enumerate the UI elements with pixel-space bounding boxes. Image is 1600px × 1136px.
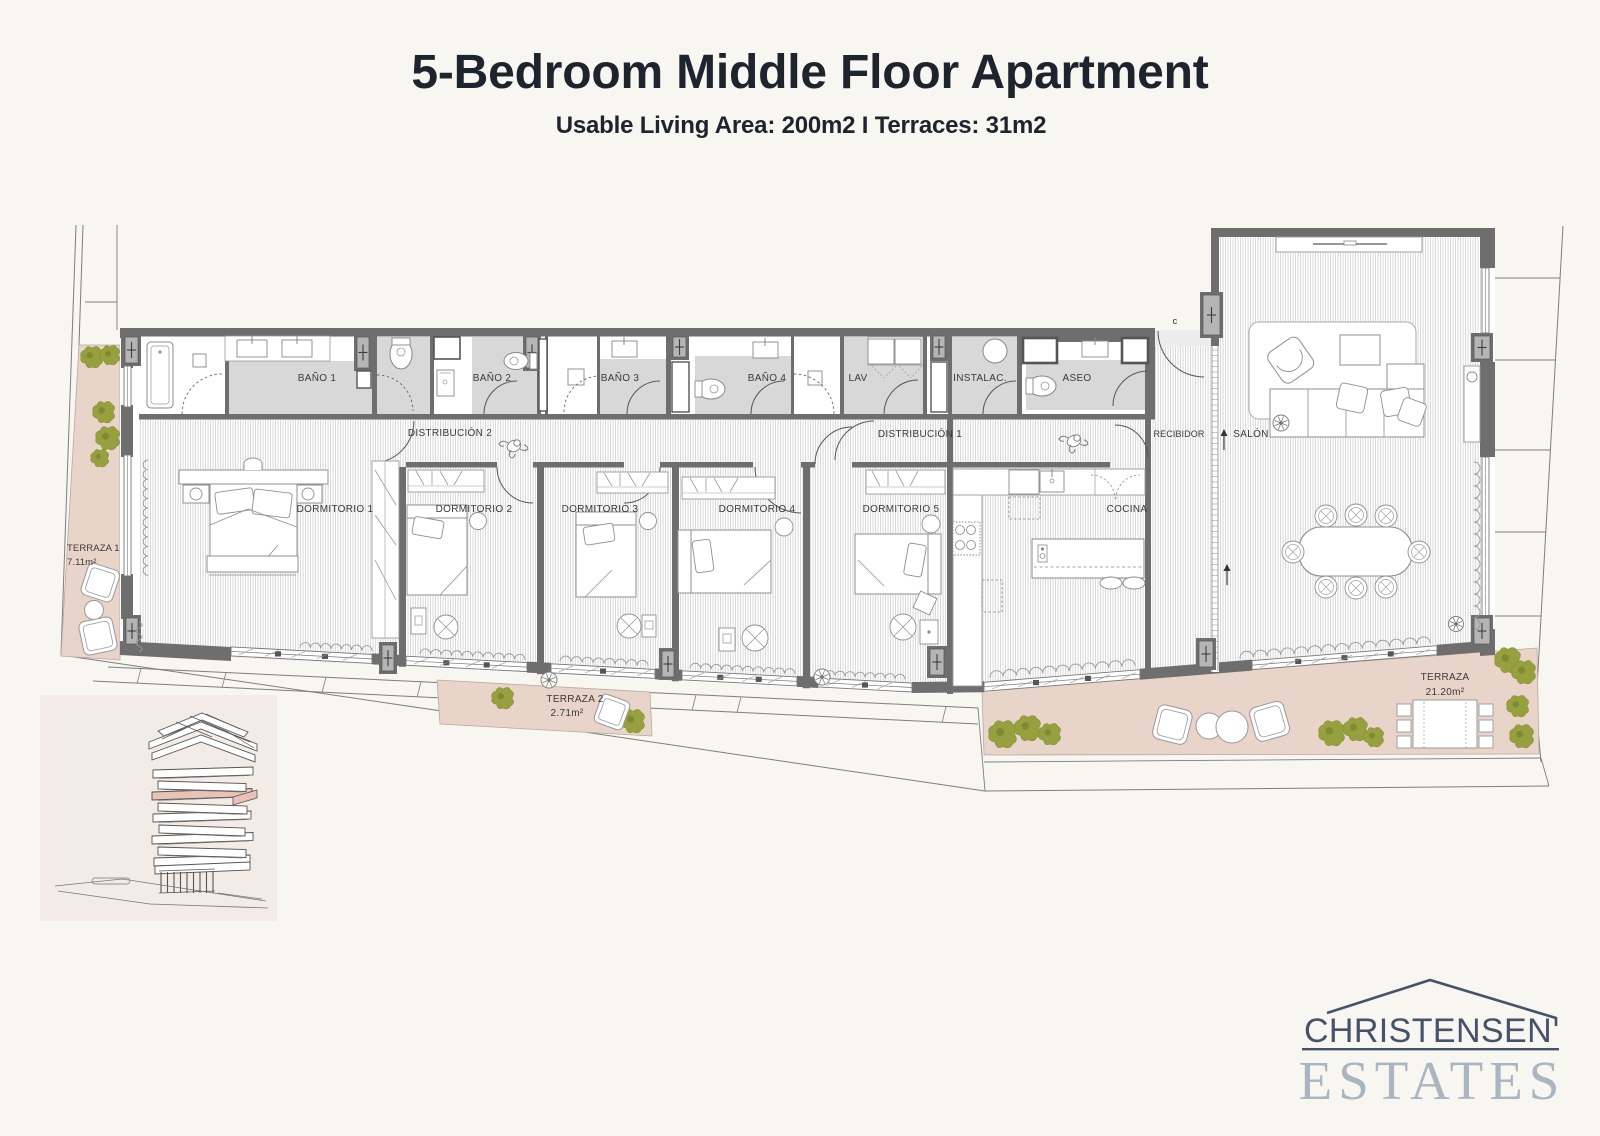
svg-text:DISTRIBUCIÓN 1: DISTRIBUCIÓN 1 [878, 427, 962, 440]
svg-text:ESTATES: ESTATES [1299, 1050, 1566, 1111]
svg-text:c: c [1172, 316, 1177, 327]
svg-text:DORMITORIO 1: DORMITORIO 1 [297, 504, 374, 515]
svg-text:DORMITORIO 5: DORMITORIO 5 [863, 504, 940, 515]
svg-text:TERRAZA: TERRAZA [1421, 672, 1470, 683]
svg-text:5-Bedroom Middle Floor Apartme: 5-Bedroom Middle Floor Apartment [411, 46, 1208, 99]
svg-text:ASEO: ASEO [1063, 373, 1092, 384]
svg-text:BAÑO 1: BAÑO 1 [298, 371, 337, 384]
svg-text:DORMITORIO 3: DORMITORIO 3 [562, 504, 639, 515]
svg-text:21.20m²: 21.20m² [1426, 687, 1465, 698]
svg-text:BAÑO 3: BAÑO 3 [601, 371, 640, 384]
svg-text:DISTRIBUCIÓN 2: DISTRIBUCIÓN 2 [408, 426, 492, 439]
svg-text:CHRISTENSEN: CHRISTENSEN [1304, 1012, 1552, 1050]
svg-text:TERRAZA 1: TERRAZA 1 [67, 543, 120, 554]
svg-text:2.71m²: 2.71m² [551, 708, 584, 719]
svg-text:COCINA: COCINA [1107, 504, 1148, 515]
svg-text:DORMITORIO 2: DORMITORIO 2 [436, 504, 513, 515]
svg-text:7.11m²: 7.11m² [67, 557, 96, 568]
svg-text:TERRAZA 2: TERRAZA 2 [546, 694, 603, 705]
svg-text:INSTALAC.: INSTALAC. [953, 373, 1007, 384]
svg-text:BAÑO 2: BAÑO 2 [473, 371, 512, 384]
svg-text:LAV: LAV [848, 373, 867, 384]
svg-text:SALÓN: SALÓN [1233, 427, 1268, 440]
svg-text:DORMITORIO 4: DORMITORIO 4 [719, 504, 796, 515]
svg-text:BAÑO 4: BAÑO 4 [748, 371, 787, 384]
svg-text:Usable Living Area: 200m2 I Te: Usable Living Area: 200m2 I Terraces: 31… [556, 112, 1047, 139]
svg-text:RECIBIDOR: RECIBIDOR [1154, 429, 1205, 439]
